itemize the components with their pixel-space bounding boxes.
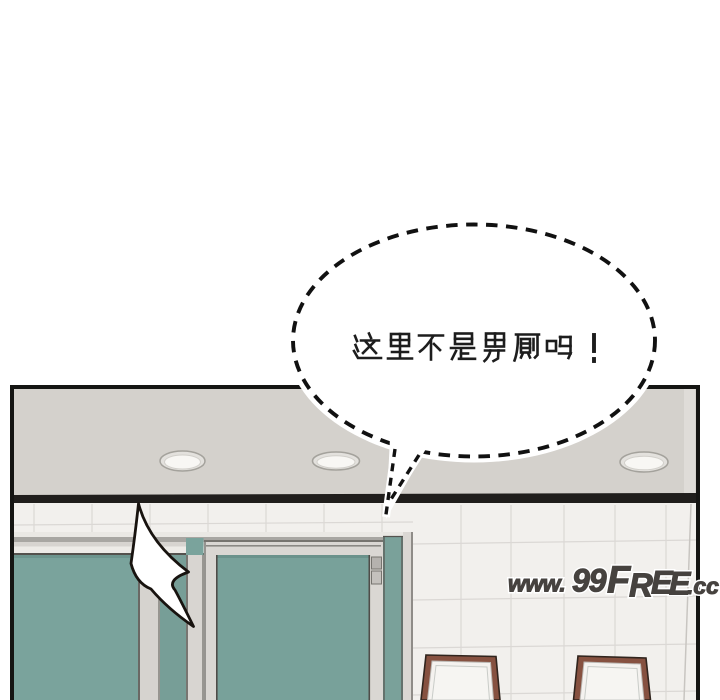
svg-text:www.: www. bbox=[508, 571, 565, 597]
svg-text:R: R bbox=[629, 567, 653, 604]
svg-text:99: 99 bbox=[572, 563, 607, 599]
svg-text:.cc: .cc bbox=[687, 573, 719, 599]
